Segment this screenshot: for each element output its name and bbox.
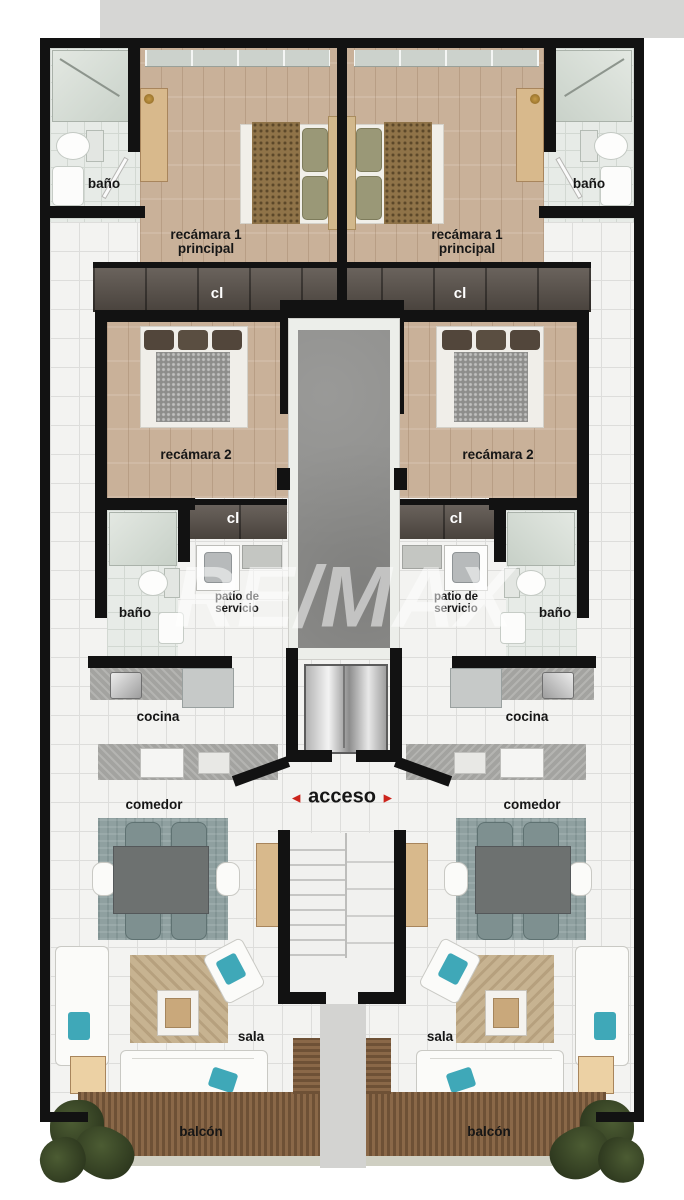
coffee-table-top	[493, 998, 519, 1028]
right-arrow-icon: ►	[381, 790, 395, 804]
kitchen-sink	[542, 672, 574, 699]
window-band	[354, 50, 539, 67]
outer-wall-bottom-left	[40, 1112, 88, 1122]
bedroom2-wall	[577, 310, 589, 618]
side-table	[578, 1056, 614, 1094]
label-dining-right: comedor	[503, 798, 560, 812]
label-bathroom-top-left: baño	[88, 177, 120, 191]
entry-door	[404, 843, 428, 927]
bed2-blanket	[454, 352, 528, 422]
bathroom-wall	[128, 48, 140, 152]
bedroom2-wall	[95, 310, 107, 618]
elevator-wall	[390, 648, 402, 762]
label-kitchen-right: cocina	[506, 710, 549, 724]
pillow	[476, 330, 506, 350]
label-bathroom-mid-right: baño	[539, 606, 571, 620]
label-closet-top-left: cl	[211, 286, 224, 302]
dining-chair-white	[216, 862, 240, 896]
pillow-teal	[68, 1012, 90, 1040]
closet-wall	[102, 310, 290, 322]
balcony-deck-edge	[364, 1038, 391, 1094]
side-table	[70, 1056, 106, 1094]
label-bathroom-top-right: baño	[573, 177, 605, 191]
elevator-wall	[286, 750, 332, 762]
label-line: principal	[170, 242, 241, 256]
floor-plan: baño baño recámara 1 principal recámara …	[0, 0, 684, 1200]
shaft-stub	[277, 468, 290, 490]
sofa-seatline	[132, 1058, 254, 1059]
label-balcony-right: balcón	[467, 1125, 511, 1139]
label-bathroom-mid-left: baño	[119, 606, 151, 620]
dining-table	[113, 846, 209, 914]
label-dining-left: comedor	[125, 798, 182, 812]
closet2	[397, 505, 497, 539]
dining-chair-white	[568, 862, 592, 896]
balcony-deck-edge	[293, 1038, 320, 1094]
master-bed-blanket	[252, 122, 300, 224]
stair-wall	[358, 992, 406, 1004]
cooktop	[500, 748, 544, 778]
pillow-teal	[594, 1012, 616, 1040]
stair-wall	[278, 830, 290, 1004]
label-bedroom2-left: recámara 2	[160, 448, 231, 462]
toilet	[138, 570, 168, 596]
tray	[454, 752, 486, 774]
fridge	[182, 668, 234, 708]
pillow	[178, 330, 208, 350]
cooktop	[140, 748, 184, 778]
shaft-cap-wall	[280, 300, 404, 318]
outer-wall-right	[634, 38, 644, 1122]
dining-chair-white	[444, 862, 468, 896]
pillow	[212, 330, 242, 350]
master-bed-blanket	[384, 122, 432, 224]
decor	[144, 94, 154, 104]
shower	[507, 512, 575, 566]
elevator	[304, 664, 388, 754]
label-living-left: sala	[238, 1030, 264, 1044]
toilet	[516, 570, 546, 596]
shower	[109, 512, 177, 566]
entry-door	[256, 843, 280, 927]
label-closet-mid-right: cl	[450, 511, 463, 527]
pillow	[510, 330, 540, 350]
label-balcony-left: balcón	[179, 1125, 223, 1139]
sink	[52, 166, 84, 206]
sofa-side	[55, 946, 109, 1066]
sofa-seatline	[430, 1058, 552, 1059]
label-closet-mid-left: cl	[227, 511, 240, 527]
elevator-wall	[356, 750, 402, 762]
access-label: ◄acceso►	[289, 786, 395, 809]
label-closet-top-right: cl	[454, 286, 467, 302]
fridge	[450, 668, 502, 708]
pillow	[302, 128, 328, 172]
bathroom-wall	[539, 206, 634, 218]
label-line: principal	[431, 242, 502, 256]
entry-walkway	[320, 1004, 366, 1168]
label-living-right: sala	[427, 1030, 453, 1044]
stair-wall	[278, 992, 326, 1004]
label-kitchen-left: cocina	[137, 710, 180, 724]
stair-treads	[346, 836, 394, 944]
bathroom-wall	[544, 48, 556, 152]
decor	[530, 94, 540, 104]
sofa-side	[575, 946, 629, 1066]
outer-wall-left	[40, 38, 50, 1122]
coffee-table-top	[165, 998, 191, 1028]
window-band	[145, 50, 330, 67]
pillow	[302, 176, 328, 220]
closet-wall	[394, 310, 582, 322]
party-wall	[337, 38, 347, 318]
label-master-bedroom-right: recámara 1 principal	[431, 228, 502, 256]
left-arrow-icon: ◄	[289, 790, 303, 804]
toilet	[56, 132, 90, 160]
label-master-bedroom-left: recámara 1 principal	[170, 228, 241, 256]
elevator-wall	[286, 648, 298, 762]
dining-table	[475, 846, 571, 914]
kitchen-wall	[88, 656, 232, 668]
pillow	[356, 128, 382, 172]
outer-wall-bottom-right	[596, 1112, 644, 1122]
label-bedroom2-right: recámara 2	[462, 448, 533, 462]
stair-treads	[290, 836, 346, 956]
stair-wall	[394, 830, 406, 1004]
toilet	[594, 132, 628, 160]
shaft-stub	[394, 468, 407, 490]
kitchen-sink	[110, 672, 142, 699]
bed2-blanket	[156, 352, 230, 422]
pillow	[144, 330, 174, 350]
label-line: recámara 1	[170, 228, 241, 242]
wardrobe	[516, 88, 544, 182]
kitchen-wall	[452, 656, 596, 668]
elevator-door-line	[343, 666, 345, 748]
tray	[198, 752, 230, 774]
label-line: recámara 1	[431, 228, 502, 242]
access-text: acceso	[308, 786, 376, 809]
pillow	[442, 330, 472, 350]
pillow	[356, 176, 382, 220]
remax-watermark: RE/MAX	[174, 549, 514, 648]
stair-divider	[345, 833, 347, 958]
bathroom-wall	[50, 206, 145, 218]
